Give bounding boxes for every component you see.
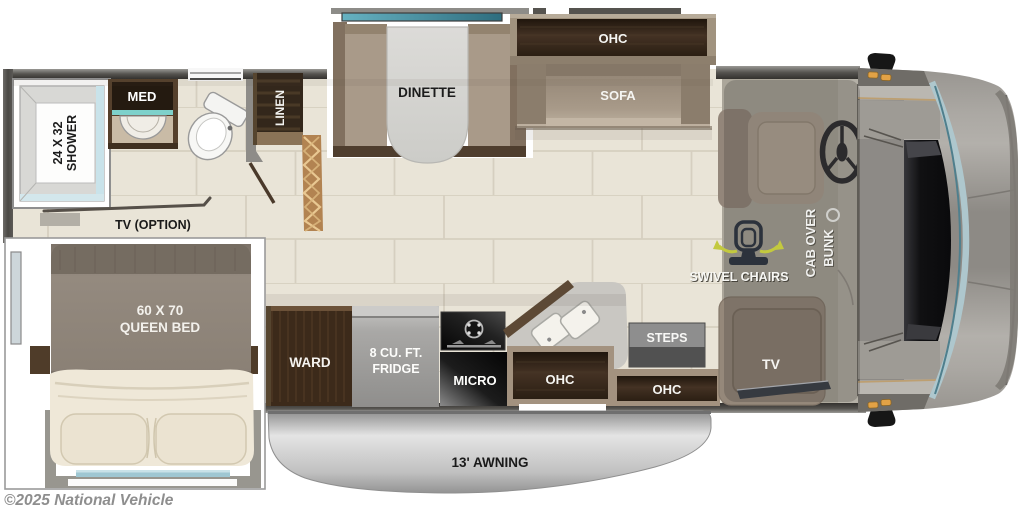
svg-text:OHC: OHC: [599, 31, 629, 46]
svg-text:13' AWNING: 13' AWNING: [452, 455, 529, 470]
svg-text:OHC: OHC: [546, 372, 576, 387]
svg-text:SHOWER: SHOWER: [65, 115, 79, 171]
svg-text:OHC: OHC: [653, 382, 683, 397]
svg-text:60 X 70: 60 X 70: [137, 303, 184, 318]
svg-text:SOFA: SOFA: [600, 88, 636, 103]
svg-text:DINETTE: DINETTE: [398, 85, 456, 100]
svg-text:SWIVEL CHAIRS: SWIVEL CHAIRS: [689, 270, 788, 284]
svg-text:WARD: WARD: [289, 355, 330, 370]
svg-text:TV: TV: [762, 356, 781, 372]
svg-text:24 X 32: 24 X 32: [51, 121, 65, 164]
svg-text:8 CU. FT.: 8 CU. FT.: [370, 346, 423, 360]
svg-text:CAB OVER: CAB OVER: [803, 208, 818, 277]
svg-text:QUEEN BED: QUEEN BED: [120, 320, 201, 335]
svg-text:FRIDGE: FRIDGE: [372, 362, 419, 376]
svg-text:©2025 National Vehicle: ©2025 National Vehicle: [4, 492, 174, 509]
svg-text:MED: MED: [128, 89, 157, 104]
svg-text:MICRO: MICRO: [453, 373, 496, 388]
svg-text:BUNK: BUNK: [821, 229, 836, 267]
svg-text:TV (OPTION): TV (OPTION): [115, 218, 191, 232]
svg-text:STEPS: STEPS: [647, 331, 688, 345]
svg-text:LINEN: LINEN: [273, 90, 287, 126]
